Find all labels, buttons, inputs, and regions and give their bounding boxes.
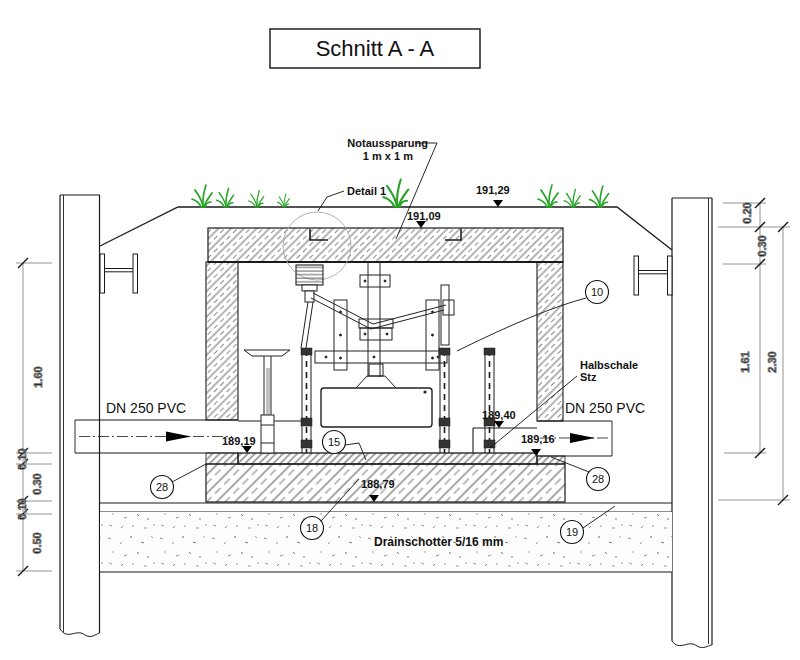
dim-right-030: 0.30	[756, 235, 768, 256]
detail-label: Detail 1	[347, 185, 386, 197]
drawing-sheet: Drainschotter 5/16 mm	[0, 0, 800, 660]
elevation-ground: 191,29	[476, 184, 510, 207]
wall-right	[537, 262, 563, 421]
title-block: Schnitt A - A	[270, 29, 480, 68]
dim-right-161: 1.61	[739, 351, 751, 372]
cover-slab	[208, 228, 563, 262]
flow-arrow-left	[166, 432, 191, 442]
svg-text:189,19: 189,19	[222, 435, 256, 447]
dn250-left-label: DN 250 PVC	[106, 400, 186, 416]
dim-left-010b: 0.10	[16, 498, 28, 519]
callout-28-left: 28	[156, 481, 168, 493]
drawing-title: Schnitt A - A	[316, 36, 435, 61]
section-drawing: Drainschotter 5/16 mm	[0, 0, 800, 660]
sheet-pile-wall-left	[60, 195, 100, 637]
svg-text:191,29: 191,29	[476, 184, 510, 196]
drainschotter-label: Drainschotter 5/16 mm	[374, 535, 503, 549]
waler-beam-left	[100, 254, 138, 293]
notaussparung-label-line2: 1 m x 1 m	[363, 150, 413, 162]
wall-left	[206, 262, 238, 420]
callout-18: 18	[306, 522, 318, 534]
svg-text:191,09: 191,09	[407, 210, 441, 222]
callout-15: 15	[328, 436, 340, 448]
detail-leader	[318, 191, 344, 211]
floor-screed	[238, 453, 537, 464]
callout-19: 19	[566, 526, 578, 538]
halbschale-label-line2: Stz	[580, 371, 597, 383]
dim-left-050: 0.50	[31, 532, 43, 553]
dim-left-160: 1.60	[32, 366, 44, 387]
float-box	[321, 388, 432, 427]
sheet-pile-wall-right	[672, 198, 712, 648]
chamber-structure	[206, 228, 565, 502]
flow-arrow-right	[570, 433, 595, 443]
elevation-invert-inlet: 189,19	[222, 435, 256, 453]
dn250-right-label: DN 250 PVC	[565, 400, 645, 416]
grass	[192, 180, 609, 208]
hoist-motor	[296, 265, 323, 285]
svg-text:189,16: 189,16	[521, 433, 555, 445]
dimension-chain-left: 1.60 0.10 0.30 0.10 0.50	[16, 258, 52, 576]
screed-under-pipe-left	[206, 453, 238, 464]
waler-beam-right	[634, 256, 672, 295]
dim-right-230: 2.30	[766, 351, 778, 372]
svg-text:188,79: 188,79	[361, 478, 395, 490]
callout-28-right: 28	[592, 473, 604, 485]
svg-text:189,40: 189,40	[482, 409, 516, 421]
elevation-cover-top: 191,09	[407, 210, 441, 228]
dim-right-020: 0.20	[741, 202, 753, 223]
gravel-layer: Drainschotter 5/16 mm	[100, 503, 672, 572]
dim-left-010a: 0.10	[16, 448, 28, 469]
dimension-chain-right: 0.20 0.30 1.61 2.30	[718, 198, 790, 505]
halbschale-label-line1: Halbschale	[580, 359, 638, 371]
dim-left-030: 0.30	[31, 473, 43, 494]
callout-10: 10	[591, 286, 603, 298]
